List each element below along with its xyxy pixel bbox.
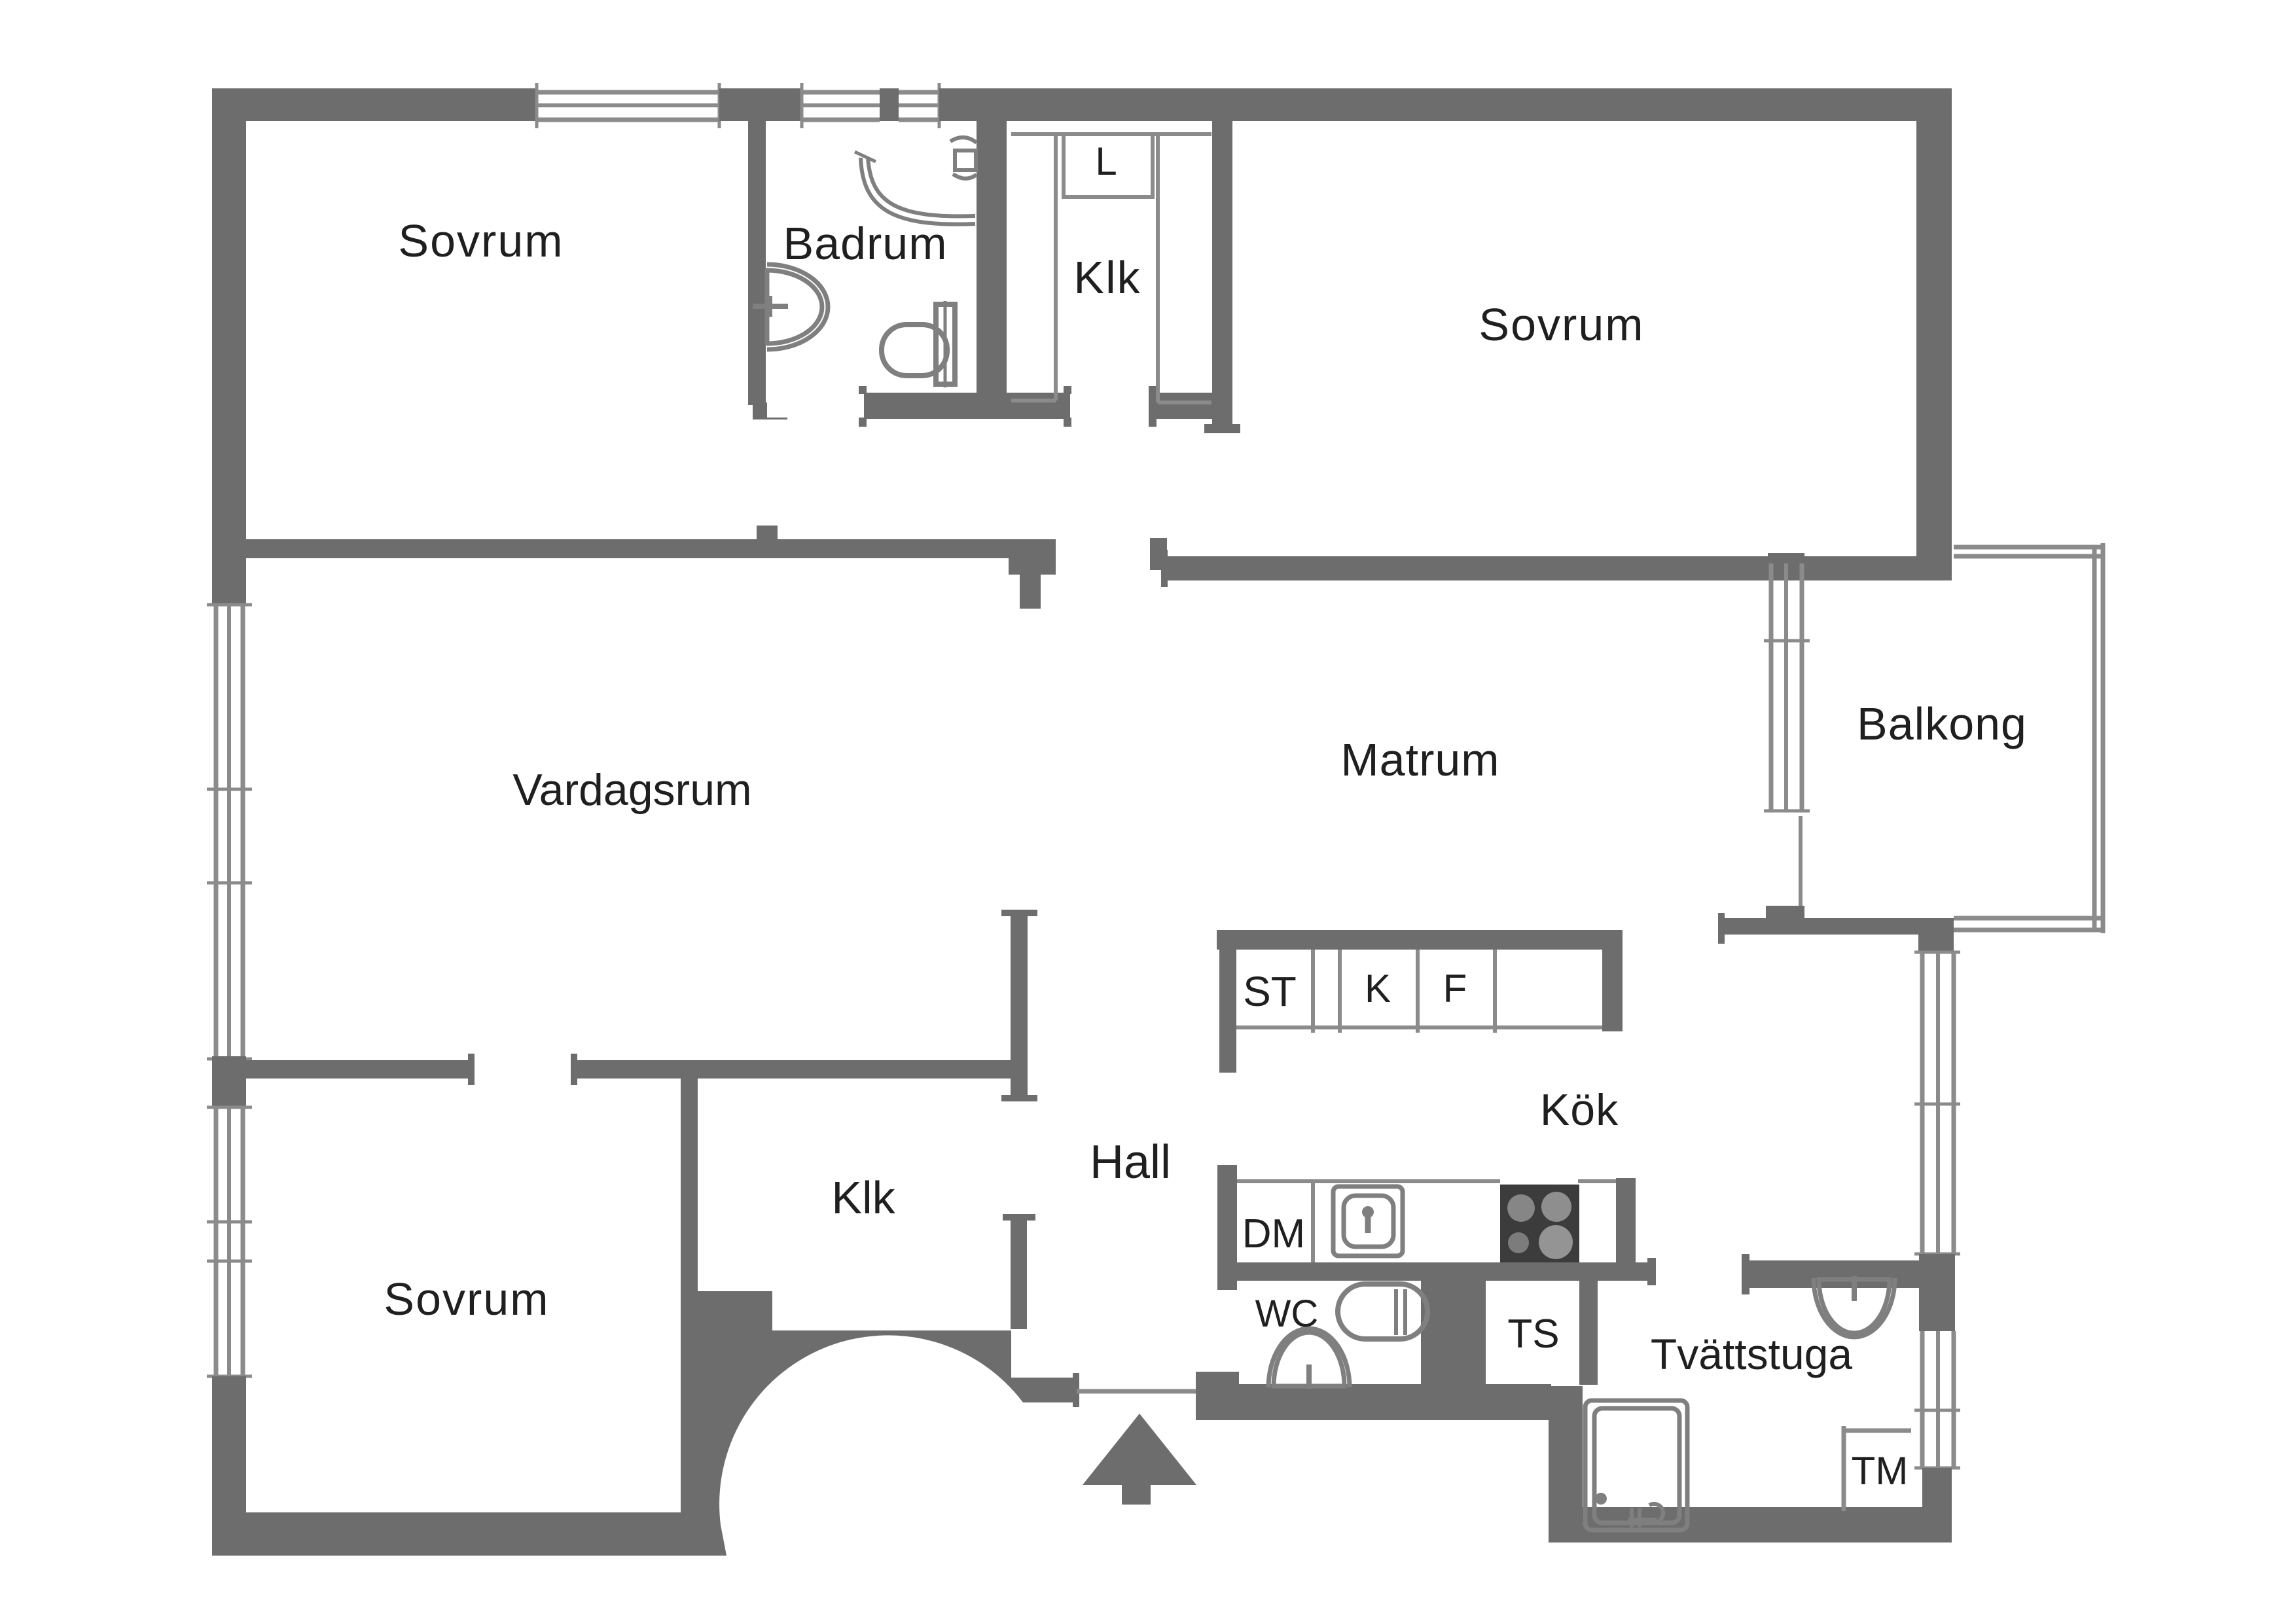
svg-text:Tvättstuga: Tvättstuga <box>1651 1330 1852 1378</box>
svg-text:L: L <box>1095 139 1117 183</box>
svg-text:Klk: Klk <box>1073 252 1141 303</box>
svg-text:Sovrum: Sovrum <box>384 1274 549 1325</box>
svg-text:Hall: Hall <box>1090 1136 1171 1188</box>
svg-text:Matrum: Matrum <box>1340 734 1499 785</box>
svg-text:Balkong: Balkong <box>1857 698 2027 749</box>
svg-text:TS: TS <box>1507 1311 1559 1357</box>
svg-text:Kök: Kök <box>1540 1085 1619 1135</box>
svg-text:Sovrum: Sovrum <box>1479 299 1644 350</box>
svg-text:DM: DM <box>1242 1211 1305 1257</box>
svg-text:Vardagsrum: Vardagsrum <box>512 765 751 815</box>
svg-text:K: K <box>1365 967 1391 1010</box>
svg-text:TM: TM <box>1852 1449 1909 1493</box>
svg-text:F: F <box>1443 967 1467 1010</box>
svg-text:WC: WC <box>1255 1293 1319 1335</box>
svg-text:Badrum: Badrum <box>783 218 947 269</box>
svg-text:ST: ST <box>1243 968 1297 1015</box>
svg-text:Klk: Klk <box>831 1172 895 1223</box>
svg-text:Sovrum: Sovrum <box>398 215 564 266</box>
